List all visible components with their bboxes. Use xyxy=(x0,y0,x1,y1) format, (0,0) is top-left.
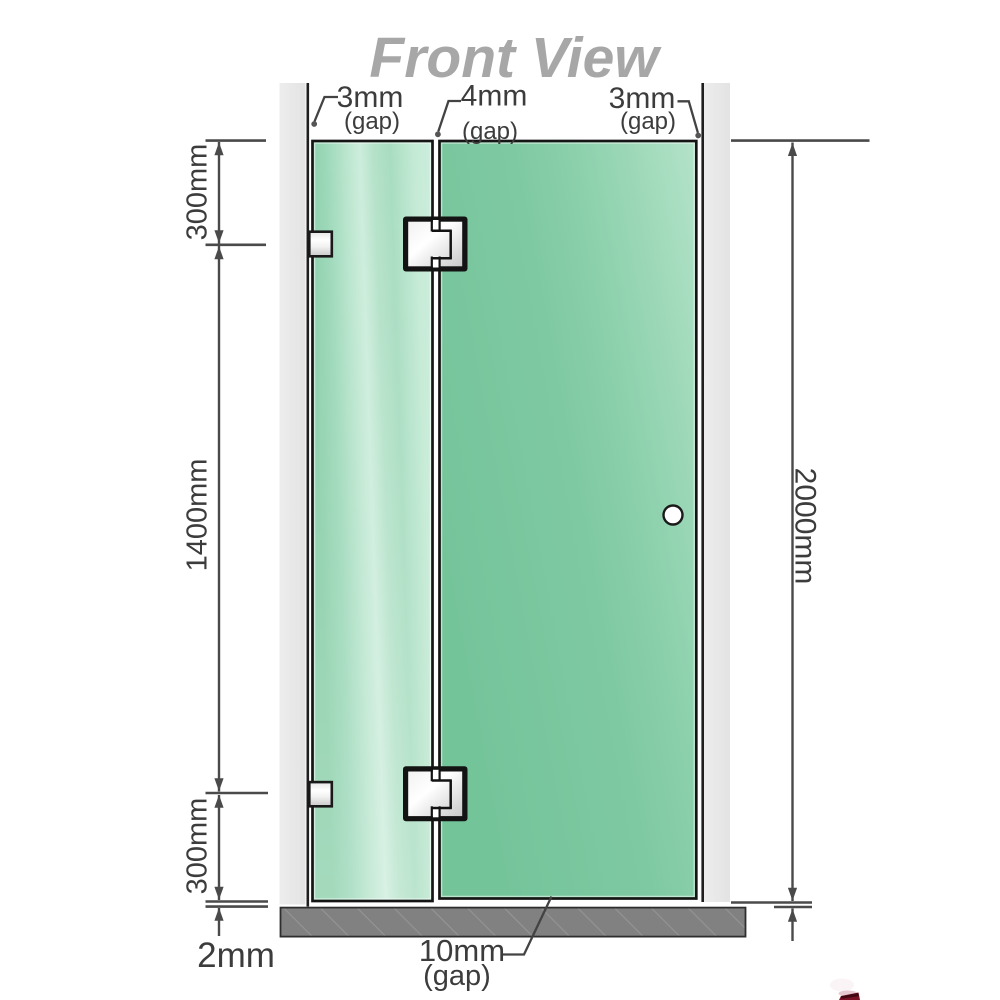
svg-text:(gap): (gap) xyxy=(620,108,676,135)
svg-text:2mm: 2mm xyxy=(197,936,275,975)
svg-text:4mm: 4mm xyxy=(461,80,528,113)
svg-text:(gap): (gap) xyxy=(344,108,400,135)
svg-text:300mm: 300mm xyxy=(182,144,214,241)
svg-text:2000mm: 2000mm xyxy=(789,468,822,585)
svg-text:(gap): (gap) xyxy=(423,960,491,992)
svg-text:300mm: 300mm xyxy=(182,798,214,895)
svg-text:1400mm: 1400mm xyxy=(182,459,214,572)
svg-text:(gap): (gap) xyxy=(462,118,518,145)
